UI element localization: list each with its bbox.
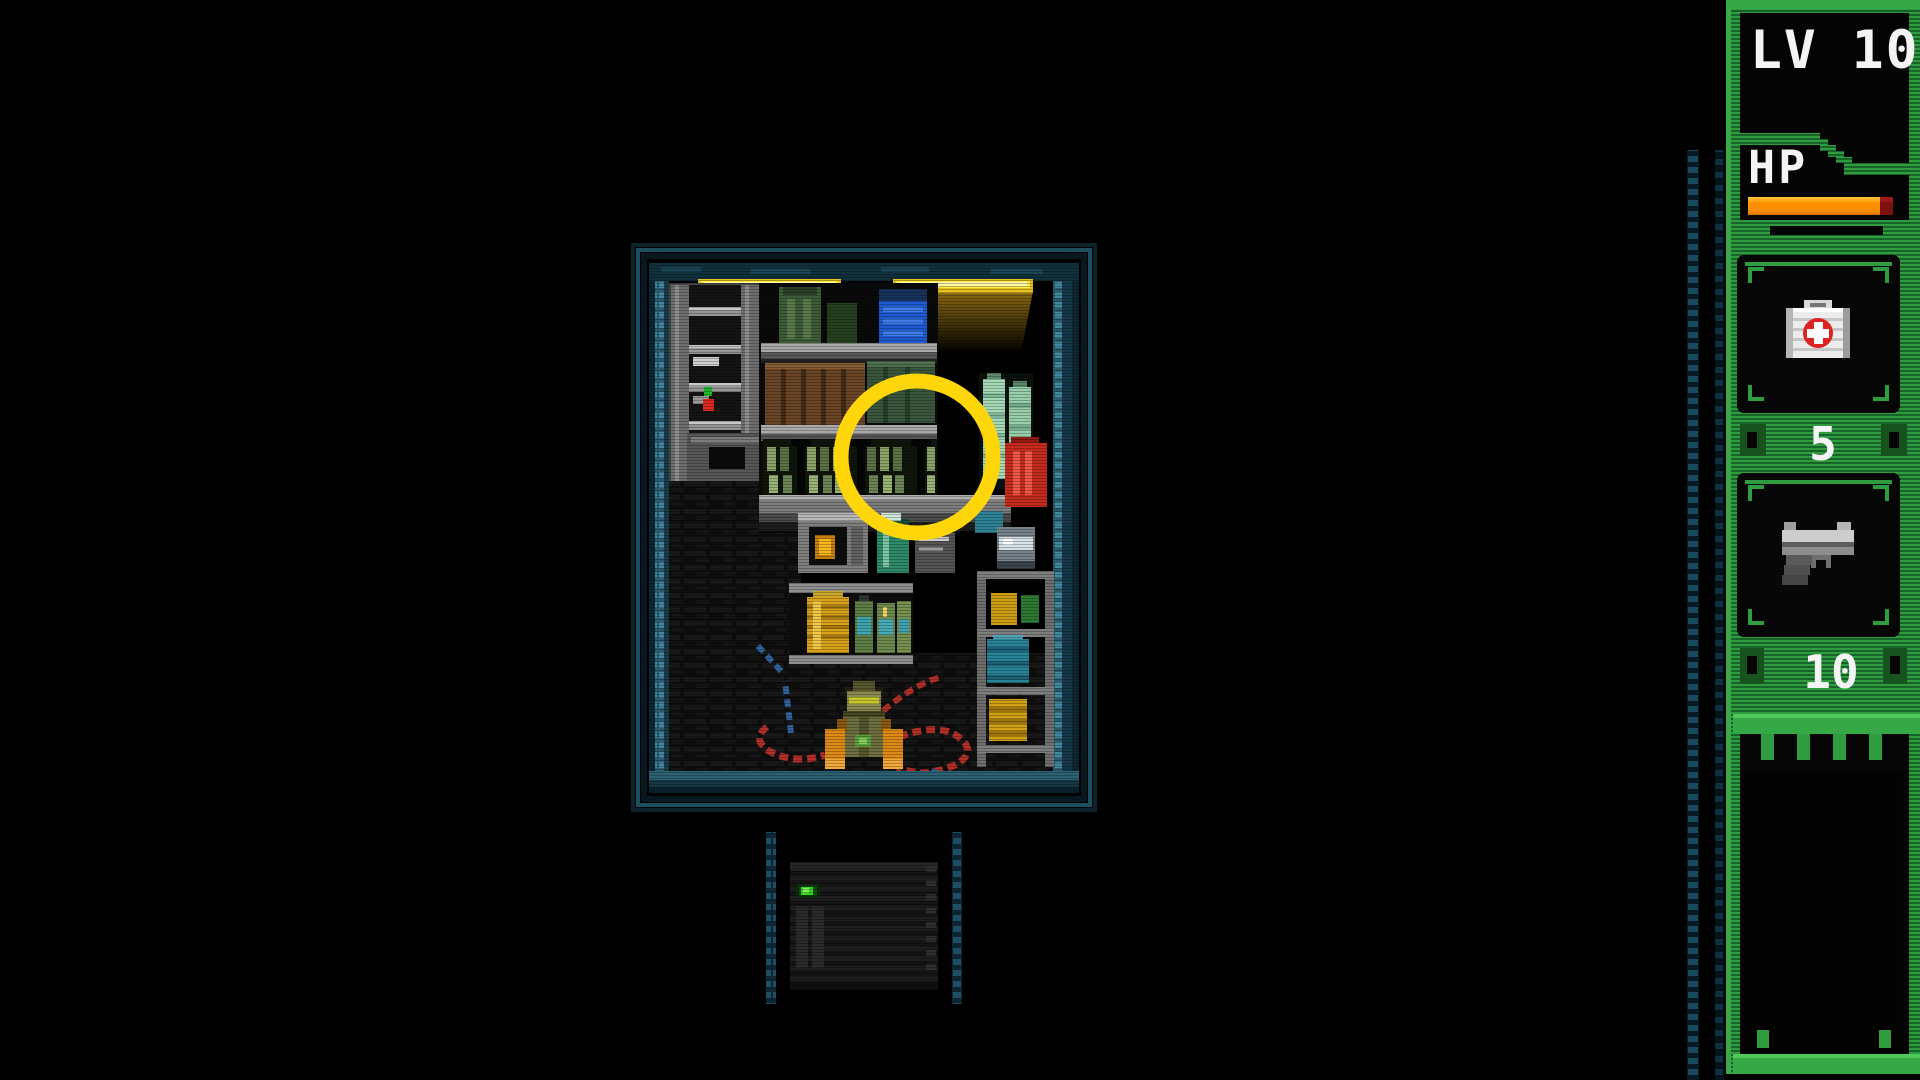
cable-strip-b bbox=[1715, 150, 1724, 1080]
pistol-slot-button[interactable] bbox=[1737, 473, 1900, 637]
left-cable-strip bbox=[766, 832, 776, 1004]
hp-label: HP bbox=[1748, 141, 1808, 194]
cable-strip-a bbox=[1687, 150, 1699, 1080]
game-screen: LV 10 HP bbox=[0, 0, 1920, 1080]
right-cable-strip bbox=[952, 832, 962, 1004]
message-log-panel bbox=[1726, 770, 1920, 1080]
medkit-icon bbox=[1786, 300, 1850, 358]
medkit-slot-button[interactable] bbox=[1737, 255, 1900, 413]
hud-panel: LV 10 HP bbox=[1687, 0, 1920, 1080]
server-unit bbox=[762, 826, 968, 1012]
medkit-count: 5 bbox=[1809, 417, 1837, 471]
level-display: LV 10 bbox=[1750, 20, 1920, 81]
hp-bar bbox=[1748, 197, 1893, 215]
scanline-overlay bbox=[649, 263, 1079, 793]
server-body bbox=[790, 862, 938, 990]
ammo-count: 10 bbox=[1803, 645, 1858, 699]
game-room-scene[interactable] bbox=[631, 241, 1097, 814]
